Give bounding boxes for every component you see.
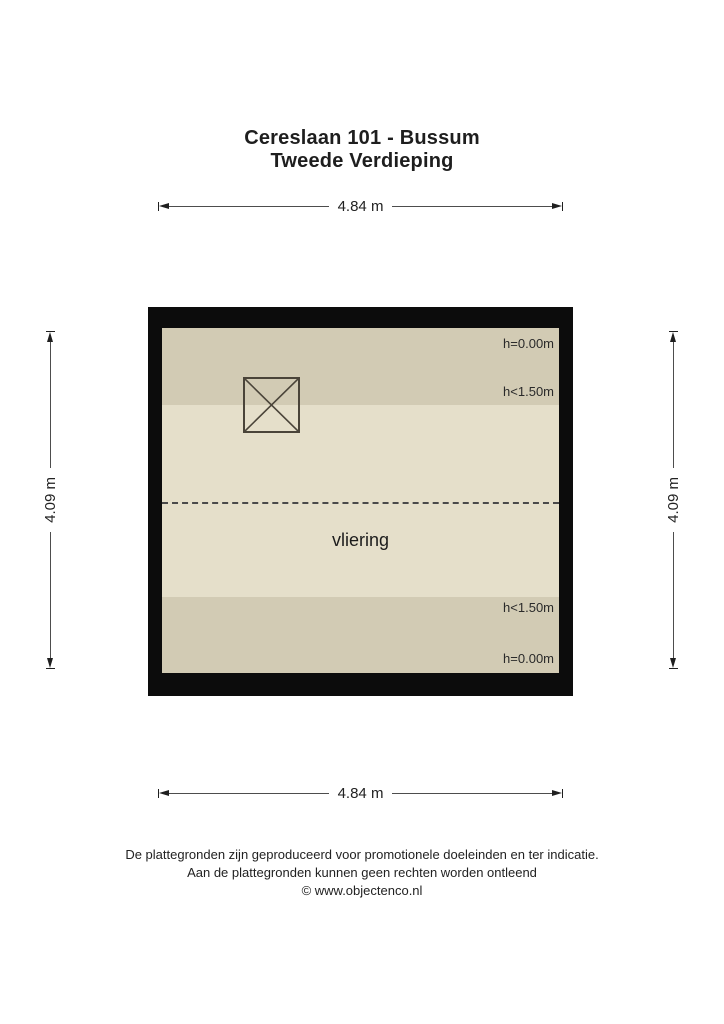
disclaimer-line1: De plattegronden zijn geproduceerd voor … (0, 846, 724, 864)
low-height-zone-bottom (162, 597, 559, 673)
height-label-top-wall: h=0.00m (503, 336, 554, 351)
dimension-bottom: 4.84 m (158, 785, 563, 801)
arrow-up-icon (670, 332, 676, 342)
floorplan-page: Cereslaan 101 - Bussum Tweede Verdieping… (0, 0, 724, 1024)
arrow-right-icon (552, 790, 562, 796)
arrow-left-icon (159, 203, 169, 209)
copyright: © www.objectenco.nl (0, 882, 724, 900)
dimension-label-left: 4.09 m (42, 468, 59, 532)
height-label-top-zone: h<1.50m (503, 384, 554, 399)
dimension-end-tick (46, 668, 55, 669)
arrow-down-icon (47, 658, 53, 668)
arrow-right-icon (552, 203, 562, 209)
dimension-top: 4.84 m (158, 198, 563, 214)
floor-plan-interior: h=0.00m h<1.50m vliering h<1.50m h=0.00m (162, 328, 559, 673)
disclaimer: De plattegronden zijn geproduceerd voor … (0, 846, 724, 900)
room-label: vliering (162, 530, 559, 551)
dimension-label-bottom: 4.84 m (329, 785, 393, 802)
arrow-down-icon (670, 658, 676, 668)
low-height-zone-top (162, 328, 559, 405)
crossed-square-symbol (243, 377, 300, 433)
floor-plan: h=0.00m h<1.50m vliering h<1.50m h=0.00m (148, 307, 573, 696)
dimension-line (169, 206, 329, 207)
dimension-left: 4.09 m (42, 331, 58, 669)
dimension-line (50, 342, 51, 468)
dimension-end-tick (669, 668, 678, 669)
dimension-line (673, 532, 674, 658)
title-address: Cereslaan 101 - Bussum (0, 127, 724, 150)
arrow-left-icon (159, 790, 169, 796)
title-floor-name: Tweede Verdieping (0, 150, 724, 173)
disclaimer-line2: Aan de plattegronden kunnen geen rechten… (0, 864, 724, 882)
dimension-end-tick (562, 789, 563, 798)
dimension-label-right: 4.09 m (665, 468, 682, 532)
dimension-line (169, 793, 329, 794)
dimension-line (673, 342, 674, 468)
dimension-label-top: 4.84 m (329, 198, 393, 215)
dimension-right: 4.09 m (665, 331, 681, 669)
dimension-line (392, 206, 552, 207)
dimension-end-tick (562, 202, 563, 211)
height-label-bottom-zone: h<1.50m (503, 600, 554, 615)
page-title: Cereslaan 101 - Bussum Tweede Verdieping (0, 127, 724, 173)
height-label-bottom-wall: h=0.00m (503, 651, 554, 666)
dimension-line (50, 532, 51, 658)
height-boundary-dashed-line (162, 502, 559, 504)
cross-lines-icon (245, 379, 298, 431)
arrow-up-icon (47, 332, 53, 342)
dimension-line (392, 793, 552, 794)
